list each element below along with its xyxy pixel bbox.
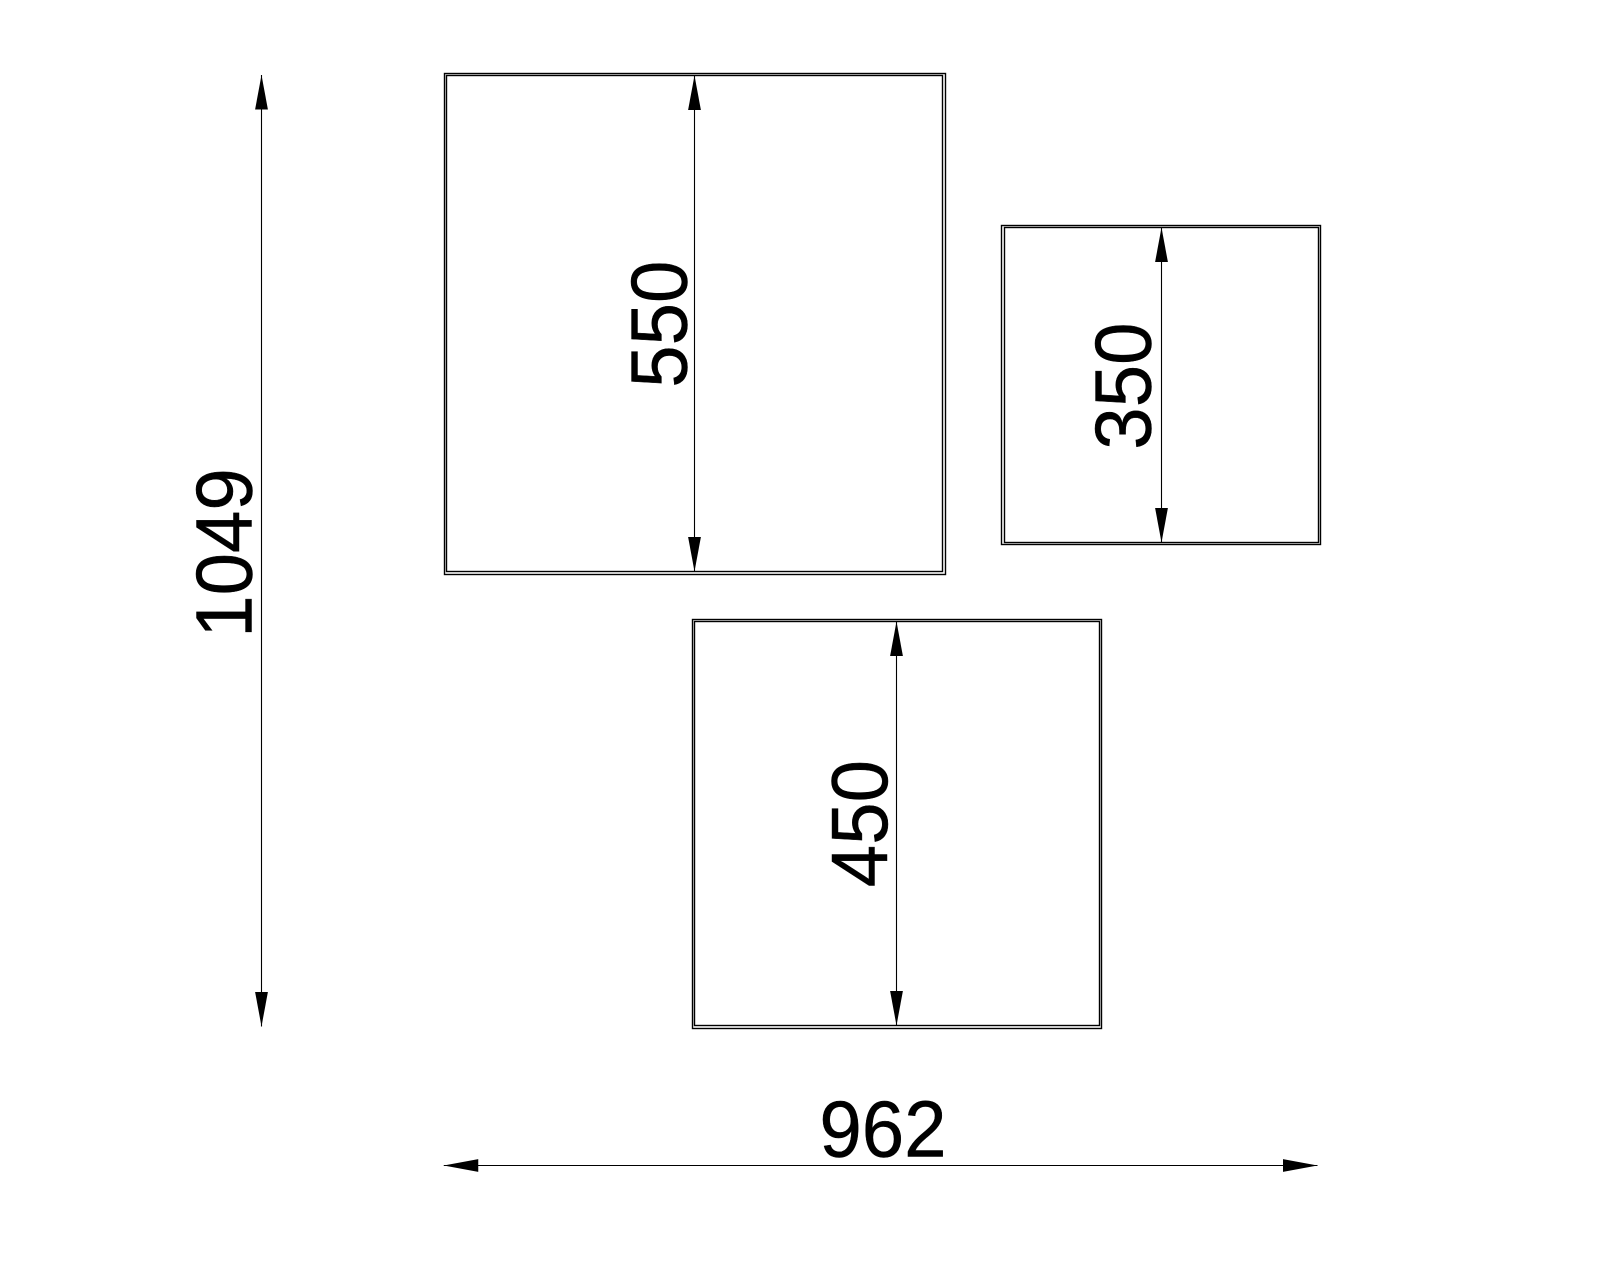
svg-text:550: 550 <box>614 261 703 388</box>
svg-text:1049: 1049 <box>179 468 268 638</box>
svg-text:350: 350 <box>1078 323 1167 450</box>
svg-text:450: 450 <box>815 760 904 887</box>
svg-text:962: 962 <box>819 1085 946 1174</box>
